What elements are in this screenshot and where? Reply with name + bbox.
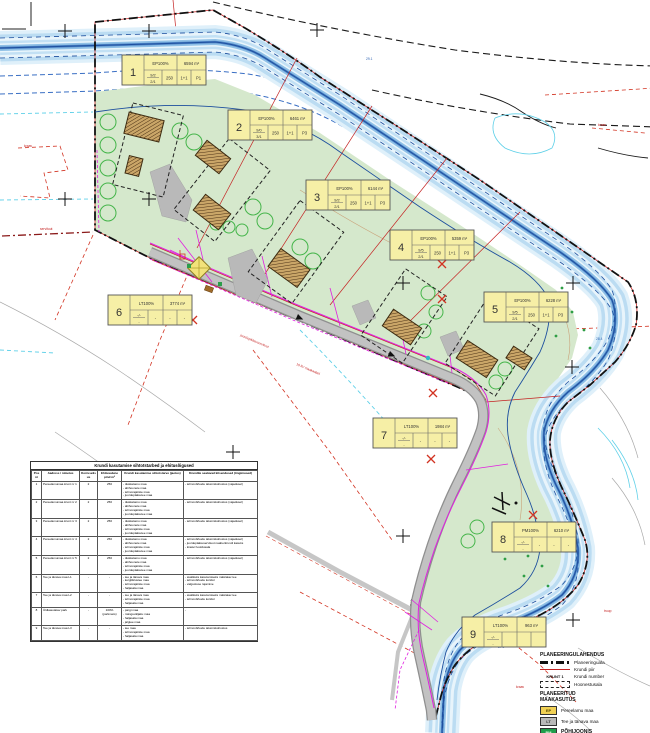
legend-item-building-zone: Hoonestusala [540,681,650,688]
plan-area-label: Planeeringuala [574,660,605,665]
svg-text:2/1: 2/1 [418,254,423,259]
svg-text:EP100%: EP100% [258,116,275,121]
svg-text:9/2: 9/2 [334,198,339,203]
table-row: 2 Pereelamumaa krunt nr 2 2 250 - üksike… [32,500,258,519]
svg-text:2/1: 2/1 [334,204,339,209]
svg-text:P3: P3 [558,313,564,318]
col-restrictions: Krundile seatavad kitsendused (tingimuse… [184,471,258,482]
svg-text:6: 6 [116,307,122,319]
table-row: 9 Tee ja tänava maa L3 - - - tee maa - t… [32,626,258,641]
ep-label: Pereelamu maa [561,708,593,713]
svg-text:2: 2 [236,122,242,134]
table-row: 7 Tee ja tänava maa L2 - - - tee ja täna… [32,593,258,608]
plan-area-line-symbol [540,661,570,663]
plot-box-5: 5 EP100% 6228 m² 9/5 2/1 250 1+1 P3 [484,292,568,322]
table-header-row: Pos nr Aadress / nimetus Korruselisus Eh… [32,471,258,482]
svg-text:2/1: 2/1 [512,316,517,321]
svg-text:250: 250 [272,131,280,136]
svg-text:10 kV maakaabel: 10 kV maakaabel [296,362,321,376]
svg-text:3774 m²: 3774 m² [170,301,186,306]
svg-text:6228 m²: 6228 m² [546,298,562,303]
table-row: 1 Pereelamumaa krunt nr 1 2 250 - üksike… [32,481,258,500]
pipeline-line [2,232,93,236]
svg-text:3: 3 [314,192,320,204]
svg-text:LT100%: LT100% [139,301,155,306]
svg-text:9: 9 [470,629,476,641]
col-pos: Pos nr [32,471,42,482]
plot-box-3: 3 EP100% 6144 m² 9/2 2/1 250 1+1 P3 [306,180,390,210]
svg-text:kraav: kraav [516,685,524,689]
svg-text:963 m²: 963 m² [525,623,539,628]
svg-text:9/5: 9/5 [512,310,517,315]
plot-box-7: 7 LT100% 1984 m² -/- - - - - [373,418,457,448]
col-floors: Korruselisus [80,471,98,482]
table-row: 5 Pereelamumaa krunt nr 5 2 250 - üksike… [32,556,258,575]
pm-swatch: PM [540,728,557,733]
legend-item-plot-boundary: Krundi piir [540,667,650,672]
table-row: 8 Üldkasutatav park - 100% (parkmets) - … [32,607,258,626]
plot-box-2: 2 EP100% 6461 m² 9/0 3/1 250 1+1 P3 [228,110,312,140]
svg-text:250: 250 [528,313,536,318]
legend: PLANEERINGULAHENDUS Planeeringuala Krund… [540,652,650,733]
svg-text:3/1: 3/1 [256,134,261,139]
svg-text:EP100%: EP100% [514,298,531,303]
svg-text:9/2: 9/2 [150,73,155,78]
lt-label: Tee ja tänava maa [561,719,599,724]
detail-plan-map: kraav servituut juurdepääsuservituut 10 … [0,0,650,733]
svg-text:1+1: 1+1 [448,251,456,256]
svg-text:1: 1 [130,67,136,79]
svg-text:EP100%: EP100% [152,61,169,66]
col-name: Aadress / nimetus [42,471,80,482]
ep-swatch: EP [540,706,557,715]
plot-boundary-line-symbol [540,669,570,670]
svg-text:7: 7 [381,430,387,442]
svg-text:LT100%: LT100% [493,623,509,628]
svg-text:8: 8 [500,534,506,546]
svg-text:5: 5 [492,304,498,316]
svg-text:9/0: 9/0 [256,128,262,133]
col-landuse: Krundi kasutamise sihtotstarve (jaotus) [122,471,184,482]
svg-text:EP100%: EP100% [420,236,437,241]
plot-box-4: 4 EP100% 5359 m² 9/5 2/1 250 1+1 P3 [390,230,474,260]
svg-text:kraav: kraav [598,123,606,127]
svg-text:1+1: 1+1 [286,131,294,136]
svg-text:250: 250 [166,76,174,81]
table-row: 4 Pereelamumaa krunt nr 4 2 250 - üksike… [32,537,258,556]
svg-text:P1: P1 [196,76,202,81]
legend-heading-solution: PLANEERINGULAHENDUS [540,652,650,658]
svg-text:250: 250 [350,201,358,206]
lt-swatch: LT [540,717,557,726]
plot-box-1: 1 EP100% 6594 m² 9/2 2/1 250 1+1 P1 [122,55,206,85]
svg-text:1+1: 1+1 [180,76,188,81]
svg-text:EP100%: EP100% [336,186,353,191]
building-zone-symbol [540,681,570,688]
svg-text:juurdepääsuservituut: juurdepääsuservituut [239,333,270,349]
svg-text:1984 m²: 1984 m² [435,424,451,429]
svg-text:kraav: kraav [24,144,32,148]
svg-text:28.4: 28.4 [596,337,603,341]
table-title: Krundi kasutamise sihtotstarbed ja ehitu… [31,462,257,470]
svg-text:1+1: 1+1 [364,201,372,206]
svg-text:6594 m²: 6594 m² [184,61,200,66]
plot-box-8: 8 PM100% 6210 m² -/- - - - - [492,522,576,552]
legend-item-pm: PM PÕHIJOONIS [540,728,650,733]
svg-text:1+1: 1+1 [542,313,550,318]
table-row: 6 Tee ja tänava maa L1 - - - tee ja täna… [32,574,258,593]
svg-text:5359 m²: 5359 m² [452,236,468,241]
legend-item-plan-area: Planeeringuala [540,660,650,665]
svg-text:2/1: 2/1 [150,79,155,84]
svg-text:P3: P3 [380,201,386,206]
svg-text:29.1: 29.1 [366,57,373,61]
plot-number-label: Krundi number [574,674,604,679]
legend-item-ep: EP Pereelamu maa [540,706,650,715]
svg-text:P3: P3 [464,251,470,256]
svg-text:LT100%: LT100% [404,424,420,429]
svg-text:PM100%: PM100% [522,528,539,533]
svg-text:9/5: 9/5 [418,248,423,253]
drawing-title: PÕHIJOONIS [561,729,592,733]
plot-box-9: 9 LT100% 963 m² -/- - [462,617,546,647]
table-row: 3 Pereelamumaa krunt nr 3 2 250 - üksike… [32,518,258,537]
svg-text:6210 m²: 6210 m² [554,528,570,533]
legend-heading-landuse: PLANEERITUDMAAKASUTUS [540,692,650,704]
legend-item-lt: LT Tee ja tänava maa [540,717,650,726]
svg-text:truup: truup [604,609,612,613]
building-rights-table: Krundi kasutamise sihtotstarbed ja ehitu… [30,461,258,642]
plot-number-symbol: KRUNT 1 [540,674,570,679]
svg-text:servituut: servituut [40,227,53,231]
svg-text:P3: P3 [302,131,308,136]
plot-box-6: 6 LT100% 3774 m² -/- - - - - [108,295,192,325]
plot-boundary-label: Krundi piir [574,667,595,672]
svg-text:6461 m²: 6461 m² [290,116,306,121]
svg-text:4: 4 [398,242,404,254]
building-zone-label: Hoonestusala [574,682,602,687]
svg-text:6144 m²: 6144 m² [368,186,384,191]
legend-item-plot-number: KRUNT 1 Krundi number [540,674,650,679]
col-footprint: Ehitusalune pind m² [98,471,122,482]
svg-text:250: 250 [434,251,442,256]
